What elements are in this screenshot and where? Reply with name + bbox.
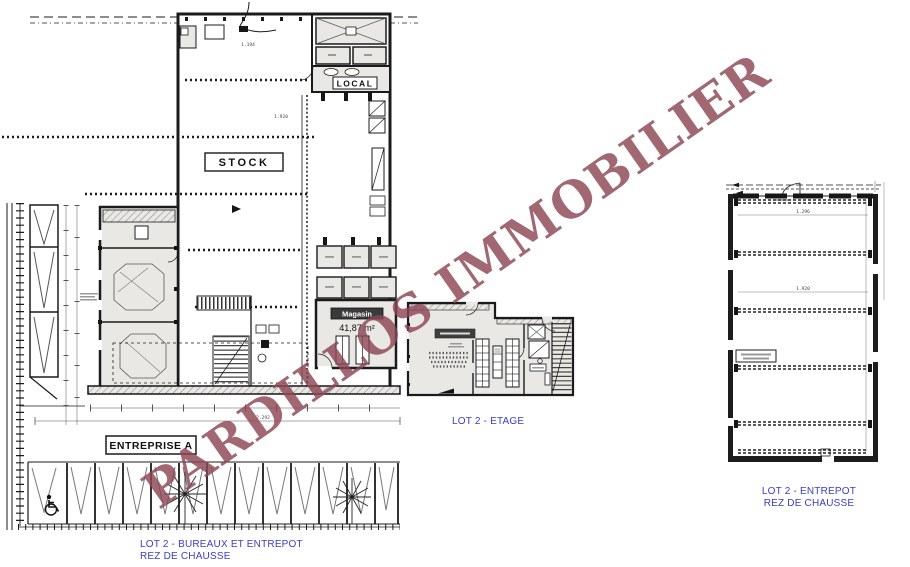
dimension-top-bay: 1.194 (241, 42, 255, 48)
caption-entrepot-line1: LOT 2 - ENTREPOT (750, 486, 868, 498)
blueprint-page: STOCK 1.194 1.920 LOCAL (0, 0, 910, 567)
caption-main-line1: LOT 2 - BUREAUX ET ENTREPOT (140, 539, 303, 551)
caption-etage-line1: LOT 2 - ETAGE (452, 416, 524, 428)
note-box (736, 350, 776, 362)
caption-entrepot-line2: REZ DE CHAUSSE (750, 498, 868, 510)
entrepot-floor-plan: 1.296 1.920 (718, 180, 888, 470)
beam-lines (734, 198, 872, 453)
caption-main-plan: LOT 2 - BUREAUX ET ENTREPOT REZ DE CHAUS… (140, 539, 303, 562)
left-parking-strip (20, 205, 98, 425)
caption-etage-plan: LOT 2 - ETAGE (452, 416, 524, 428)
dimension-lower-bay: 1.920 (796, 286, 810, 292)
entrepot-dimensions: 1.296 1.920 (738, 182, 884, 452)
dimension-mid-bay: 1.920 (274, 114, 288, 120)
caption-main-line2: REZ DE CHAUSSE (140, 551, 303, 563)
sink-icon (345, 69, 359, 76)
caption-entrepot-plan: LOT 2 - ENTREPOT REZ DE CHAUSSE (750, 486, 868, 509)
dimension-upper-bay: 1.296 (796, 209, 810, 215)
office-annex (98, 207, 178, 392)
wheelchair-icon (46, 495, 59, 515)
sink-icon (324, 69, 338, 76)
local-room-label: LOCAL (337, 79, 374, 89)
storage-cells (317, 237, 396, 298)
stock-room-label: STOCK (219, 157, 270, 169)
arrow-icon (732, 183, 739, 187)
